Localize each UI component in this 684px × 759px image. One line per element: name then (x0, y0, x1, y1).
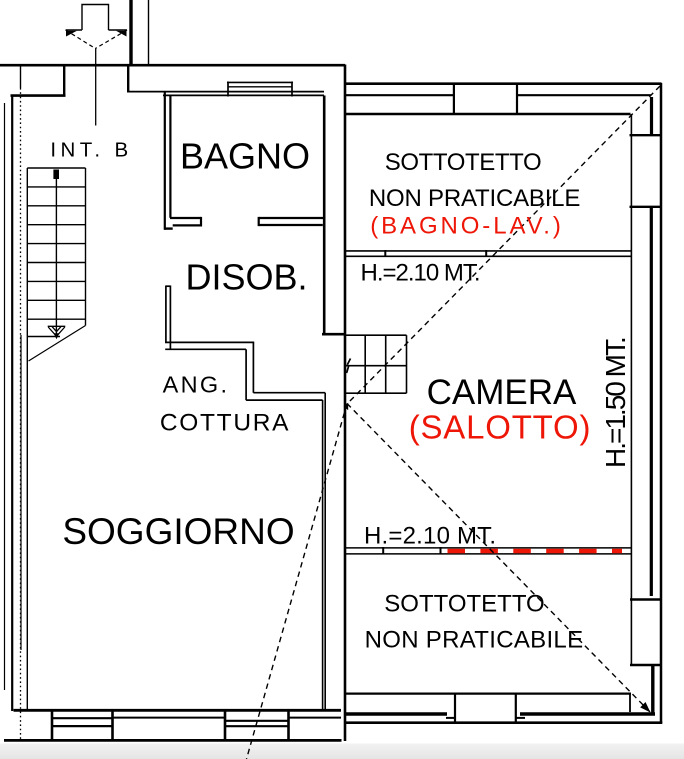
svg-text:NON PRATICABILE: NON PRATICABILE (365, 627, 584, 654)
svg-text:(SALOTTO): (SALOTTO) (409, 409, 592, 446)
svg-text:SOGGIORNO: SOGGIORNO (62, 511, 294, 552)
svg-text:SOTTOTETTO: SOTTOTETTO (385, 149, 541, 176)
svg-text:ANG.: ANG. (163, 372, 230, 398)
svg-text:NON PRATICABILE: NON PRATICABILE (369, 185, 580, 212)
svg-text:CAMERA: CAMERA (427, 373, 577, 412)
svg-text:DISOB.: DISOB. (185, 257, 307, 298)
svg-text:INT. B: INT. B (50, 139, 132, 162)
svg-text:H.=1.50 MT.: H.=1.50 MT. (600, 338, 631, 468)
svg-text:H.=2.10 MT.: H.=2.10 MT. (364, 523, 496, 550)
svg-text:SOTTOTETTO: SOTTOTETTO (384, 591, 544, 618)
svg-text:(BAGNO-LAV.): (BAGNO-LAV.) (370, 213, 564, 240)
svg-text:H.=2.10 MT.: H.=2.10 MT. (361, 260, 480, 287)
svg-text:BAGNO: BAGNO (180, 136, 310, 177)
svg-text:COTTURA: COTTURA (160, 410, 290, 437)
